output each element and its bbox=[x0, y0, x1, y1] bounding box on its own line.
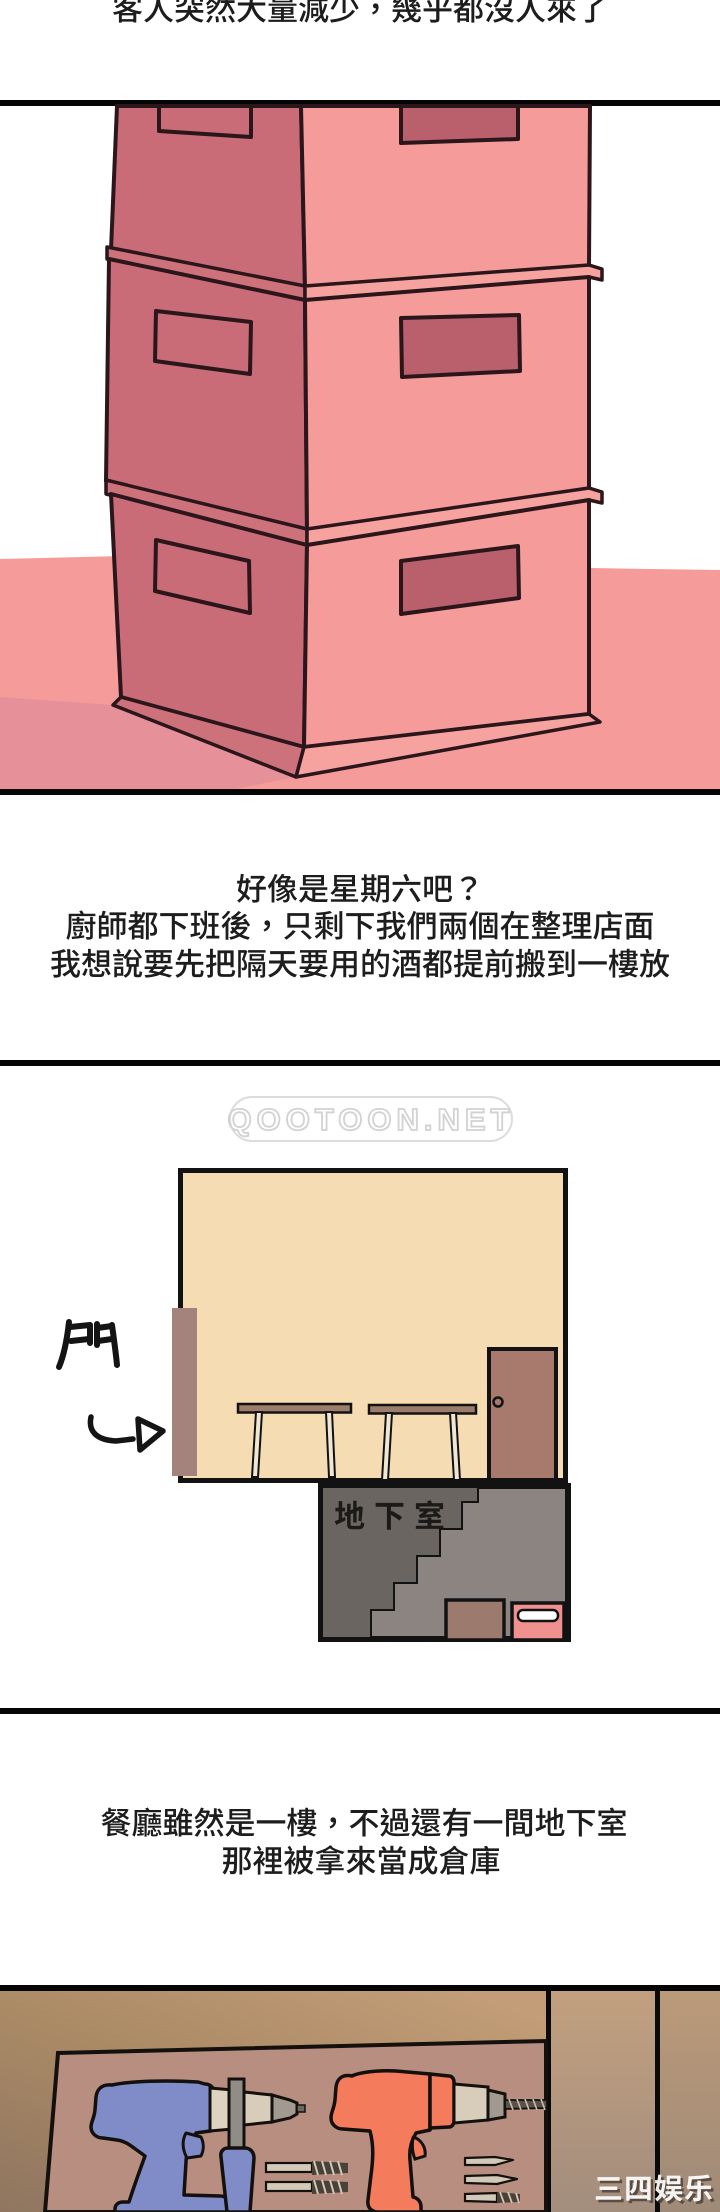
svg-text:QOOTOON.NET: QOOTOON.NET bbox=[228, 1102, 515, 1137]
